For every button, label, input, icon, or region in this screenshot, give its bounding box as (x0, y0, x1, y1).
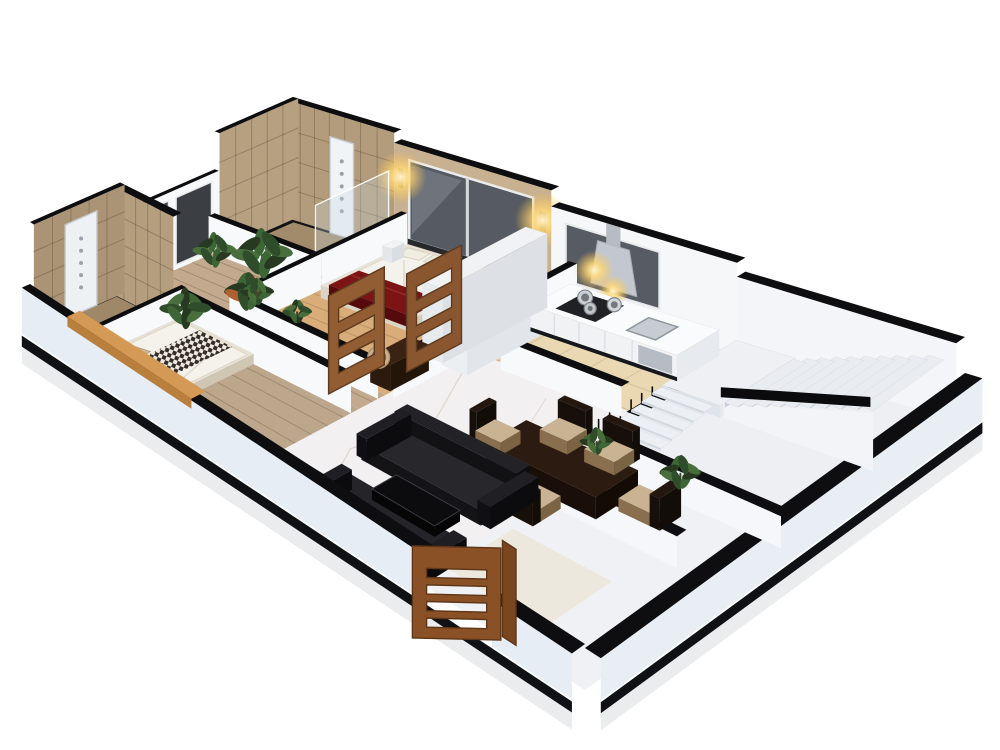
floor-plan-3d-render (0, 0, 1000, 750)
entrance-door-frame-post (503, 541, 517, 646)
pot-3 (607, 298, 621, 312)
pot-2 (584, 303, 596, 315)
cooktop-light (574, 250, 614, 290)
second-bath-shower-panel (65, 211, 97, 319)
floor-plan-scene (0, 0, 1000, 750)
